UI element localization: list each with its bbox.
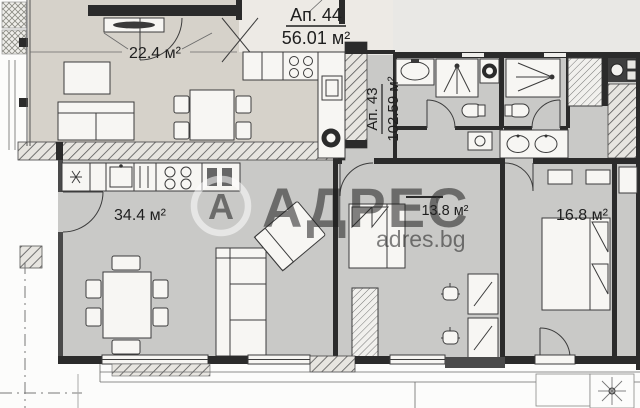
double-vanity (500, 130, 568, 158)
right-strip-wall (612, 164, 617, 360)
room-168-label: 16.8 м² (556, 207, 609, 224)
sofa-apt44 (58, 102, 134, 140)
apt44-top-wall (88, 5, 239, 16)
window-sill-dark (445, 357, 505, 368)
room-344-label: 34.4 м² (114, 207, 167, 224)
hatched-wall-horizontal (18, 142, 345, 160)
floorplan-image: Ап. 44 56.01 м² 22.4 м² Ап. 43 102.59 м²… (0, 0, 640, 408)
corridor-sink (468, 132, 492, 150)
wardrobe-top-right (568, 58, 602, 106)
bath-divider-wall (499, 58, 504, 128)
window-4 (535, 355, 575, 364)
desk-2 (468, 318, 498, 358)
outer-right-wall (636, 52, 640, 370)
wall-cap-bottom (345, 140, 367, 148)
watermark-logo-letter: А (208, 186, 234, 227)
wall-seg-1 (58, 356, 102, 364)
bath1-bottom-wall-b (455, 126, 503, 130)
balcony-box (536, 374, 590, 406)
watermark-site-text: adres.bg (376, 226, 466, 252)
living-left-wall-b (58, 232, 63, 356)
nightstand-2 (586, 170, 610, 184)
hatched-pier (310, 356, 355, 372)
right-strip-cabinet (619, 167, 637, 193)
band-wall-b (374, 158, 505, 164)
bath-top-wall (393, 52, 640, 58)
hall-top-wall (345, 50, 395, 54)
wall-seg-2 (208, 356, 248, 364)
shower-bath2 (506, 59, 560, 97)
wall-seg-3 (355, 356, 390, 364)
toilet-bath1 (462, 104, 485, 117)
coffee-table (64, 62, 110, 94)
apt43-area-label: 102.59 м² (385, 76, 402, 141)
planter-box-1 (2, 2, 26, 28)
facade-pillar (20, 246, 42, 268)
wall-seg-5 (575, 356, 640, 364)
wall-junction-left (56, 142, 63, 160)
tv-unit (104, 18, 164, 32)
nightstand-1 (548, 170, 572, 184)
apt44-area-label: 56.01 м² (282, 28, 350, 48)
toilet-bath2 (505, 104, 529, 117)
band-wall-c (533, 158, 640, 164)
apt44-inner-wall (236, 0, 242, 20)
window-tick-2 (544, 53, 566, 57)
apt44-name-label: Ап. 44 (290, 5, 342, 25)
room-224-label: 22.4 м² (129, 45, 182, 62)
bath2-bottom-wall-b (560, 126, 568, 130)
wardrobe-small-room (352, 288, 378, 358)
washer-apt44 (322, 129, 341, 148)
apt43-name-label: Ап. 43 (364, 87, 381, 130)
washing-machine-bath1 (480, 59, 499, 83)
shower-bath1 (436, 59, 478, 97)
window-tick-1 (462, 53, 484, 57)
wall-seg-4 (505, 356, 535, 364)
plant-symbol (590, 374, 634, 408)
desk-1 (468, 274, 498, 314)
storage-hatched (608, 84, 640, 158)
wardrobe-wall (602, 58, 608, 106)
bed-large (542, 218, 610, 310)
center-right-divider (500, 162, 505, 360)
bath2-bottom-wall-a (504, 126, 532, 130)
kitchenette-right (608, 58, 640, 82)
floor-plan-svg: Ап. 44 56.01 м² 22.4 м² Ап. 43 102.59 м²… (0, 0, 640, 408)
balcony-hatch-slab (112, 364, 210, 376)
sofa-living (216, 248, 266, 356)
